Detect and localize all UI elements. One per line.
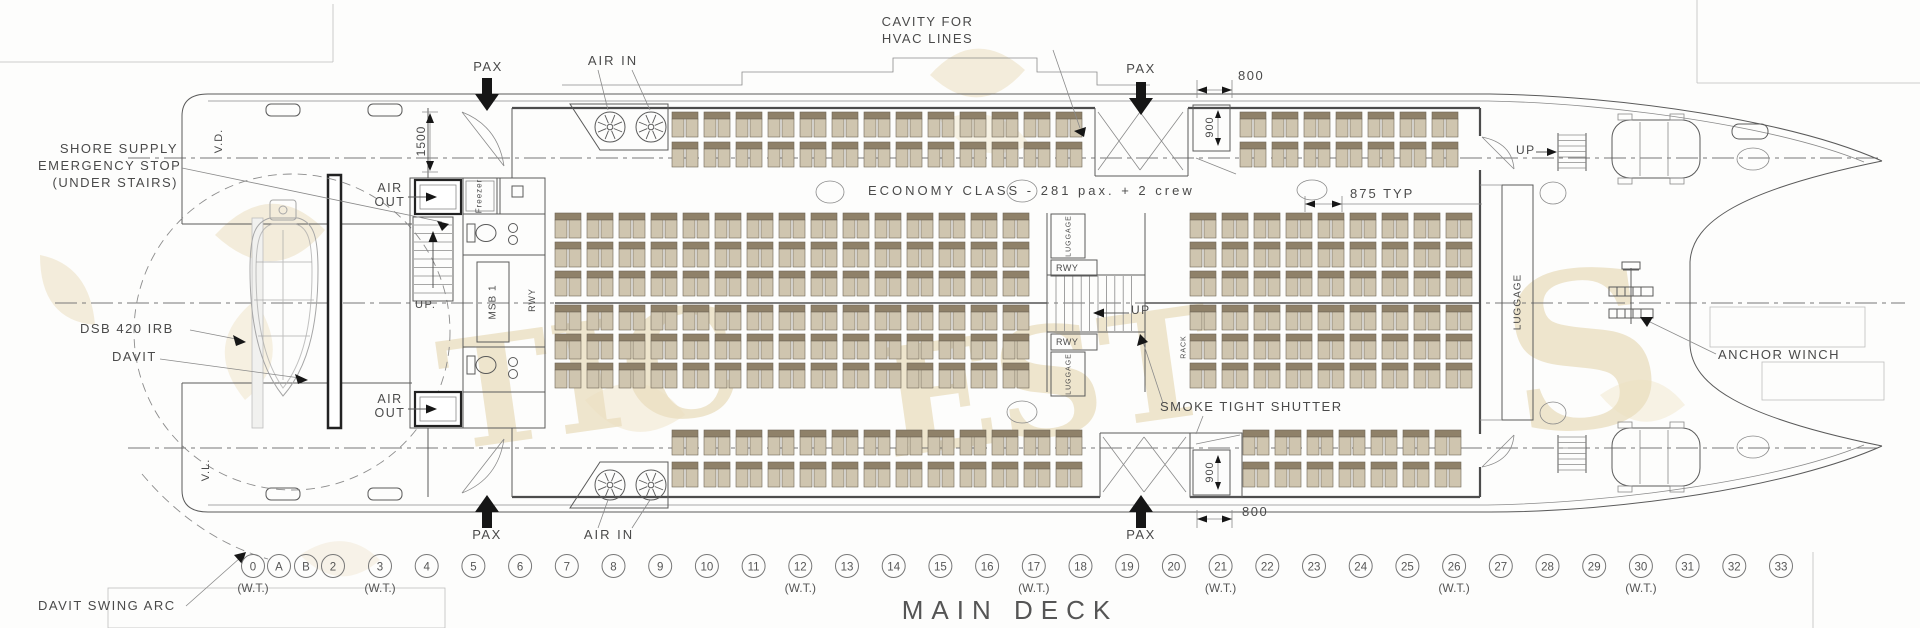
- svg-text:(W.T.): (W.T.): [1018, 581, 1049, 595]
- freezer-label: Freezer: [475, 179, 484, 214]
- seat-unit: [768, 112, 794, 137]
- seat-unit: [1056, 462, 1082, 487]
- seat-unit: [683, 334, 709, 359]
- liferaft-top: [1612, 120, 1700, 178]
- pax-label-top-left: PAX: [470, 59, 506, 76]
- seat-unit: [747, 271, 773, 296]
- seat-unit: [1003, 271, 1029, 296]
- seat-unit: [864, 112, 890, 137]
- svg-text:4: 4: [423, 562, 430, 574]
- dim-800-top: 800: [1238, 68, 1264, 85]
- pax-label-top-right: PAX: [1122, 61, 1160, 78]
- rack-label: RACK: [1181, 335, 1188, 358]
- davit-label: DAVIT: [112, 349, 157, 366]
- seat-unit: [843, 242, 869, 267]
- svg-text:8: 8: [610, 562, 616, 574]
- seat-unit: [939, 242, 965, 267]
- frame-marker: 27: [1489, 555, 1512, 578]
- dim-1500: 1500: [414, 126, 428, 157]
- svg-text:12: 12: [794, 562, 807, 574]
- seat-unit: [619, 305, 645, 330]
- seat-unit: [704, 430, 730, 455]
- seat-unit: [1400, 112, 1426, 137]
- fan-icon: [636, 470, 666, 500]
- svg-text:(W.T.): (W.T.): [785, 581, 816, 595]
- davit-swing-arc-label: DAVIT SWING ARC: [38, 598, 176, 615]
- seat-unit: [896, 112, 922, 137]
- frame-marker: 29: [1583, 555, 1606, 578]
- shore-supply-line1: SHORE SUPPLY: [38, 141, 178, 158]
- frame-marker: 23: [1303, 555, 1326, 578]
- dsb-irb-label: DSB 420 IRB: [80, 321, 174, 338]
- frame-marker: 32: [1723, 555, 1746, 578]
- seat-unit: [939, 363, 965, 388]
- seat-unit: [1350, 242, 1376, 267]
- seat-unit: [1446, 305, 1472, 330]
- svg-text:21: 21: [1214, 562, 1227, 574]
- seat-unit: [928, 430, 954, 455]
- rwy-label-stairs-bottom: RWY: [1056, 337, 1078, 349]
- seat-unit: [651, 213, 677, 238]
- seat-unit: [1222, 334, 1248, 359]
- seat-unit: [1286, 242, 1312, 267]
- seat-unit: [1318, 363, 1344, 388]
- seat-unit: [1286, 334, 1312, 359]
- seat-unit: [800, 142, 826, 167]
- svg-text:32: 32: [1728, 562, 1741, 574]
- seat-unit: [1403, 430, 1429, 455]
- seat-unit: [1056, 430, 1082, 455]
- seat-unit: [939, 213, 965, 238]
- svg-text:13: 13: [841, 562, 854, 574]
- seat-unit: [1432, 112, 1458, 137]
- seat-unit: [832, 462, 858, 487]
- seat-unit: [587, 334, 613, 359]
- seat-unit: [971, 305, 997, 330]
- seat-unit: [715, 271, 741, 296]
- air-out-line1: AIR: [368, 181, 412, 195]
- seat-unit: [1190, 305, 1216, 330]
- seat-unit: [1414, 334, 1440, 359]
- seat-unit: [800, 462, 826, 487]
- seat-unit: [928, 112, 954, 137]
- seat-unit: [907, 334, 933, 359]
- seat-unit: [960, 462, 986, 487]
- seat-unit: [683, 363, 709, 388]
- seat-unit: [779, 334, 805, 359]
- seat-unit: [1003, 242, 1029, 267]
- svg-text:5: 5: [470, 562, 476, 574]
- frame-marker: 12(W.T.): [785, 555, 816, 596]
- davit-post: [328, 175, 341, 428]
- svg-text:16: 16: [981, 562, 994, 574]
- seat-unit: [779, 242, 805, 267]
- seat-unit: [875, 213, 901, 238]
- luggage-label-stairs-top: LUGGAGE: [1066, 215, 1073, 257]
- seat-unit: [992, 430, 1018, 455]
- svg-text:(W.T.): (W.T.): [237, 581, 268, 595]
- seat-unit: [896, 462, 922, 487]
- frame-marker: 8: [602, 555, 625, 578]
- seat-unit: [1190, 213, 1216, 238]
- frame-marker: 28: [1536, 555, 1559, 578]
- seat-unit: [587, 242, 613, 267]
- seat-unit: [907, 305, 933, 330]
- seat-unit: [992, 462, 1018, 487]
- seat-unit: [715, 334, 741, 359]
- seat-unit: [928, 142, 954, 167]
- seat-unit: [736, 462, 762, 487]
- up-label-centre-stairs: UP: [1131, 303, 1151, 319]
- seat-unit: [992, 142, 1018, 167]
- svg-text:23: 23: [1308, 562, 1321, 574]
- frame-marker: 20: [1162, 555, 1185, 578]
- seat-unit: [651, 334, 677, 359]
- seat-unit: [768, 142, 794, 167]
- svg-text:A: A: [275, 562, 283, 574]
- seat-unit: [811, 334, 837, 359]
- seat-unit: [1222, 363, 1248, 388]
- seat-unit: [1435, 462, 1461, 487]
- vd-label: V.D.: [213, 129, 225, 153]
- svg-text:28: 28: [1541, 562, 1554, 574]
- seat-unit: [800, 112, 826, 137]
- seat-unit: [907, 242, 933, 267]
- seat-unit: [587, 305, 613, 330]
- seat-unit: [843, 213, 869, 238]
- seat-unit: [651, 242, 677, 267]
- dim-875-typ: 875 TYP: [1350, 186, 1414, 203]
- fan-icon: [636, 112, 666, 142]
- svg-text:9: 9: [657, 562, 663, 574]
- seat-unit: [1350, 213, 1376, 238]
- seat-unit: [555, 363, 581, 388]
- shore-supply-line2: EMERGENCY STOP: [38, 158, 178, 175]
- frame-marker: 25: [1396, 555, 1419, 578]
- seat-unit: [1339, 462, 1365, 487]
- seat-unit: [1003, 305, 1029, 330]
- seat-unit: [555, 271, 581, 296]
- svg-text:15: 15: [934, 562, 947, 574]
- dim-900-top: 900: [1204, 116, 1216, 137]
- seat-unit: [1307, 430, 1333, 455]
- seat-unit: [875, 363, 901, 388]
- seat-unit: [715, 363, 741, 388]
- seat-unit: [747, 334, 773, 359]
- seat-unit: [1350, 271, 1376, 296]
- seat-unit: [1414, 363, 1440, 388]
- seat-unit: [1339, 430, 1365, 455]
- smoke-shutter-label: SMOKE TIGHT SHUTTER: [1160, 399, 1343, 416]
- svg-text:33: 33: [1775, 562, 1788, 574]
- seat-unit: [971, 242, 997, 267]
- seat-unit: [1382, 271, 1408, 296]
- seat-unit: [1350, 305, 1376, 330]
- svg-text:30: 30: [1635, 562, 1648, 574]
- seat-unit: [1446, 213, 1472, 238]
- seat-unit: [1382, 334, 1408, 359]
- frame-marker: 6: [509, 555, 532, 578]
- seat-unit: [1400, 142, 1426, 167]
- seat-unit: [1304, 112, 1330, 137]
- seat-unit: [1382, 363, 1408, 388]
- msb-label: MSB 1: [488, 284, 499, 319]
- svg-text:0: 0: [250, 562, 256, 574]
- main-deck-drawing: TIC EST S: [0, 0, 1920, 628]
- seat-unit: [1190, 271, 1216, 296]
- air-in-label-bottom: AIR IN: [570, 527, 648, 544]
- seat-unit: [683, 242, 709, 267]
- seat-unit: [939, 334, 965, 359]
- seat-unit: [1275, 462, 1301, 487]
- seat-unit: [651, 305, 677, 330]
- seat-unit: [1318, 334, 1344, 359]
- seat-unit: [1382, 305, 1408, 330]
- frame-marker: A: [268, 555, 291, 578]
- frame-marker: 10: [695, 555, 718, 578]
- seat-unit: [875, 305, 901, 330]
- seat-unit: [619, 334, 645, 359]
- svg-text:6: 6: [517, 562, 523, 574]
- seat-unit: [779, 363, 805, 388]
- air-in-plenum-top: [570, 104, 668, 150]
- seat-unit: [1350, 334, 1376, 359]
- seat-unit: [555, 242, 581, 267]
- frame-marker: 4: [415, 555, 438, 578]
- frame-marker: 9: [649, 555, 672, 578]
- seat-unit: [1446, 363, 1472, 388]
- seat-unit: [704, 462, 730, 487]
- seat-unit: [672, 112, 698, 137]
- air-out-label-top: AIR OUT: [368, 181, 412, 210]
- frame-marker: 26(W.T.): [1438, 555, 1469, 596]
- seat-unit: [1222, 305, 1248, 330]
- seat-unit: [1056, 142, 1082, 167]
- seat-unit: [939, 305, 965, 330]
- seat-unit: [800, 430, 826, 455]
- seat-unit: [1371, 462, 1397, 487]
- seat-unit: [1318, 305, 1344, 330]
- seat-unit: [1350, 363, 1376, 388]
- svg-text:22: 22: [1261, 562, 1274, 574]
- vl-label: V.L.: [200, 459, 212, 482]
- seat-unit: [619, 271, 645, 296]
- frame-marker: 33: [1770, 555, 1793, 578]
- seat-unit: [1254, 363, 1280, 388]
- frame-marker: 7: [555, 555, 578, 578]
- sheet-title: MAIN DECK: [860, 594, 1160, 628]
- seat-unit: [1336, 112, 1362, 137]
- seat-unit: [1368, 142, 1394, 167]
- economy-seats: [555, 112, 1472, 487]
- air-in-label-top: AIR IN: [574, 53, 652, 70]
- seat-unit: [715, 305, 741, 330]
- svg-text:(W.T.): (W.T.): [364, 581, 395, 595]
- seat-unit: [1382, 242, 1408, 267]
- svg-text:31: 31: [1681, 562, 1694, 574]
- svg-text:B: B: [302, 562, 310, 574]
- seat-unit: [1435, 430, 1461, 455]
- seat-unit: [971, 334, 997, 359]
- frame-marker: 13: [836, 555, 859, 578]
- seat-unit: [768, 462, 794, 487]
- seat-unit: [1003, 363, 1029, 388]
- seat-unit: [864, 430, 890, 455]
- seat-unit: [587, 213, 613, 238]
- cavity-note: CAVITY FOR HVAC LINES: [795, 14, 1060, 48]
- svg-text:(W.T.): (W.T.): [1625, 581, 1656, 595]
- seat-unit: [683, 271, 709, 296]
- svg-text:7: 7: [564, 562, 570, 574]
- seat-unit: [747, 305, 773, 330]
- frame-marker: 18: [1069, 555, 1092, 578]
- seat-unit: [1403, 462, 1429, 487]
- seat-unit: [832, 430, 858, 455]
- seat-unit: [843, 363, 869, 388]
- seat-unit: [971, 363, 997, 388]
- seat-unit: [811, 271, 837, 296]
- seat-unit: [1382, 213, 1408, 238]
- luggage-label-bow: LUGGAGE: [1513, 274, 1524, 330]
- seat-unit: [1254, 242, 1280, 267]
- svg-text:19: 19: [1121, 562, 1134, 574]
- seat-unit: [555, 305, 581, 330]
- seat-unit: [1275, 430, 1301, 455]
- seat-unit: [1003, 213, 1029, 238]
- seat-unit: [1190, 334, 1216, 359]
- seat-unit: [907, 363, 933, 388]
- bow-ladder-top: [1558, 133, 1586, 171]
- seat-unit: [1414, 271, 1440, 296]
- seat-unit: [736, 430, 762, 455]
- seat-unit: [672, 142, 698, 167]
- svg-text:(W.T.): (W.T.): [1438, 581, 1469, 595]
- up-label-bow: UP: [1516, 143, 1536, 159]
- seat-unit: [672, 430, 698, 455]
- seat-unit: [875, 242, 901, 267]
- seat-unit: [896, 430, 922, 455]
- seat-unit: [747, 363, 773, 388]
- seat-unit: [1190, 363, 1216, 388]
- seat-unit: [555, 334, 581, 359]
- up-label-aft-stairs: UP.: [415, 298, 436, 312]
- seat-unit: [1222, 242, 1248, 267]
- svg-text:20: 20: [1168, 562, 1181, 574]
- seat-unit: [875, 271, 901, 296]
- seat-unit: [907, 213, 933, 238]
- svg-text:14: 14: [887, 562, 900, 574]
- liferaft-bottom: [1612, 428, 1700, 486]
- svg-text:2: 2: [330, 562, 336, 574]
- seat-unit: [843, 305, 869, 330]
- seat-unit: [779, 271, 805, 296]
- air-in-plenum-bottom: [570, 462, 668, 508]
- svg-text:25: 25: [1401, 562, 1414, 574]
- seat-unit: [1254, 213, 1280, 238]
- air-out-line2: OUT: [368, 406, 412, 420]
- seat-unit: [811, 242, 837, 267]
- frame-marker: 31: [1676, 555, 1699, 578]
- seat-unit: [1190, 242, 1216, 267]
- seat-unit: [1240, 112, 1266, 137]
- seat-unit: [587, 271, 613, 296]
- frame-marker: 5: [462, 555, 485, 578]
- frame-marker: 11: [742, 555, 765, 578]
- seat-unit: [1432, 142, 1458, 167]
- seat-unit: [960, 142, 986, 167]
- seat-unit: [1318, 271, 1344, 296]
- seat-unit: [864, 142, 890, 167]
- seat-unit: [683, 305, 709, 330]
- frame-marker: 22: [1256, 555, 1279, 578]
- seat-unit: [1307, 462, 1333, 487]
- seat-unit: [1024, 430, 1050, 455]
- cavity-line2: HVAC LINES: [795, 31, 1060, 48]
- svg-text:(W.T.): (W.T.): [1205, 581, 1236, 595]
- frame-grid: 0(W.T.)AB23(W.T.)456789101112(W.T.)13141…: [237, 555, 1792, 596]
- rwy-label-aft: RWY: [527, 288, 537, 312]
- seat-unit: [843, 334, 869, 359]
- anchor-winch-icon: [1609, 262, 1653, 324]
- seat-unit: [768, 430, 794, 455]
- seat-unit: [843, 271, 869, 296]
- seat-unit: [832, 142, 858, 167]
- frame-marker: 19: [1116, 555, 1139, 578]
- svg-text:24: 24: [1354, 562, 1367, 574]
- seat-unit: [1024, 462, 1050, 487]
- seat-unit: [1446, 271, 1472, 296]
- seat-unit: [1286, 305, 1312, 330]
- anchor-winch-label: ANCHOR WINCH: [1718, 347, 1840, 364]
- seat-unit: [811, 213, 837, 238]
- frame-marker: 21(W.T.): [1205, 555, 1236, 596]
- seat-unit: [1446, 242, 1472, 267]
- dim-800-bottom: 800: [1242, 504, 1268, 521]
- seat-unit: [555, 213, 581, 238]
- seat-unit: [1286, 363, 1312, 388]
- luggage-label-stairs-bottom: LUGGAGE: [1066, 353, 1073, 395]
- seat-unit: [1304, 142, 1330, 167]
- svg-text:18: 18: [1074, 562, 1087, 574]
- rwy-label-stairs-top: RWY: [1056, 263, 1078, 275]
- seat-unit: [907, 271, 933, 296]
- pax-label-bottom-left: PAX: [468, 527, 506, 544]
- seat-unit: [736, 112, 762, 137]
- seat-unit: [1414, 213, 1440, 238]
- seat-unit: [1240, 142, 1266, 167]
- cavity-line1: CAVITY FOR: [795, 14, 1060, 31]
- seat-unit: [1414, 242, 1440, 267]
- seat-unit: [1371, 430, 1397, 455]
- seat-unit: [736, 142, 762, 167]
- shore-supply-line3: (UNDER STAIRS): [38, 175, 178, 192]
- seat-unit: [619, 213, 645, 238]
- bow-ladder-bottom: [1558, 435, 1586, 473]
- seat-unit: [587, 363, 613, 388]
- seat-unit: [704, 112, 730, 137]
- seat-unit: [651, 271, 677, 296]
- seat-unit: [651, 363, 677, 388]
- frame-marker: 14: [882, 555, 905, 578]
- seat-unit: [1336, 142, 1362, 167]
- seat-unit: [715, 213, 741, 238]
- seat-unit: [1318, 213, 1344, 238]
- seat-unit: [1446, 334, 1472, 359]
- svg-text:29: 29: [1588, 562, 1601, 574]
- economy-class-note: ECONOMY CLASS - 281 pax. + 2 crew: [868, 183, 1195, 200]
- seat-unit: [811, 305, 837, 330]
- shore-supply-note: SHORE SUPPLY EMERGENCY STOP (UNDER STAIR…: [38, 141, 178, 192]
